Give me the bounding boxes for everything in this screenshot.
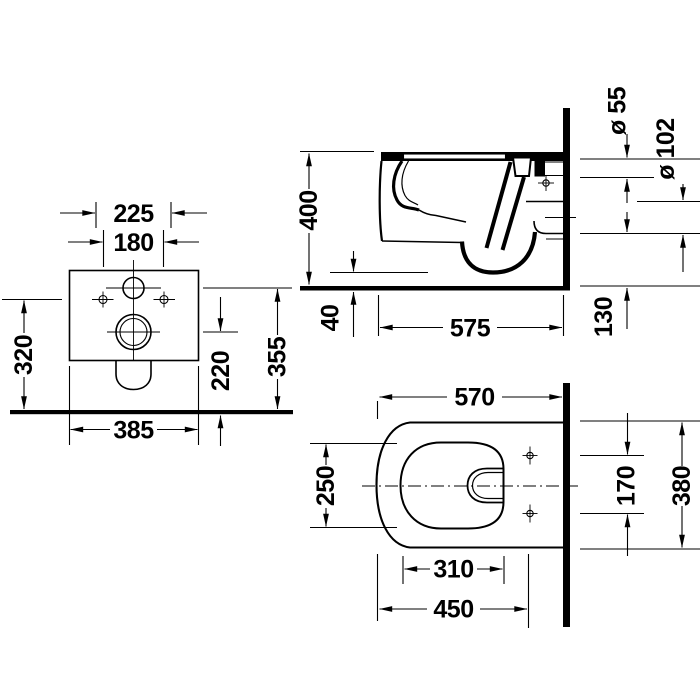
front-trapway-outline <box>116 361 151 390</box>
dim-label-250: 250 <box>312 466 340 506</box>
side-outlet-bottom <box>534 221 563 234</box>
dim-label-400: 400 <box>295 190 323 230</box>
front-floor-line <box>10 410 293 414</box>
dim-380: 380 <box>668 423 696 548</box>
dim-225: 225 <box>60 200 207 228</box>
side-trapway-curve <box>462 232 535 273</box>
dim-180: 180 <box>68 229 199 257</box>
dim-label-220: 220 <box>207 351 235 391</box>
dim-label-170: 170 <box>613 466 641 506</box>
dim-label-385: 385 <box>113 417 154 445</box>
toilet-dimension-drawing: 225 180 320 355 220 385 <box>0 0 700 700</box>
dim-575: 575 <box>380 315 562 343</box>
dim-dia-102: ø 102 <box>652 118 683 272</box>
dim-label-310: 310 <box>433 556 473 584</box>
dim-label-225: 225 <box>113 200 154 228</box>
dim-label-320: 320 <box>10 335 38 375</box>
dim-label-180: 180 <box>113 229 153 257</box>
dim-label-dia55: ø 55 <box>604 86 632 135</box>
side-spud-block <box>535 159 546 177</box>
dim-40: 40 <box>317 251 354 337</box>
side-bowl-floor-line <box>419 210 466 222</box>
dim-label-570: 570 <box>454 384 494 412</box>
top-bowl-outline <box>401 443 504 529</box>
dim-250: 250 <box>312 445 340 527</box>
side-toilet-profile <box>380 152 576 273</box>
side-wall-line <box>563 108 570 290</box>
dim-450: 450 <box>380 596 528 624</box>
top-view: 570 250 310 450 170 380 <box>310 383 700 628</box>
dim-label-40: 40 <box>317 305 345 332</box>
dim-label-dia102: ø 102 <box>652 118 680 179</box>
dim-label-355: 355 <box>264 336 292 377</box>
side-floor-line <box>300 286 570 291</box>
dim-570: 570 <box>380 384 563 412</box>
top-flush-rim-inner <box>473 473 504 499</box>
dim-label-130: 130 <box>590 297 618 337</box>
top-extension-lines <box>310 401 700 628</box>
dim-320: 320 <box>10 301 38 410</box>
top-seat-holes <box>523 447 538 523</box>
top-wall-line <box>563 383 570 627</box>
side-extension-lines <box>300 152 700 337</box>
side-bowl-outer-curve <box>394 161 419 210</box>
dim-385: 385 <box>71 417 198 445</box>
dim-130: 130 <box>590 212 627 337</box>
side-flush-channel-back <box>503 177 525 250</box>
dim-label-450: 450 <box>433 596 473 624</box>
side-front-edge <box>380 161 382 241</box>
dim-400: 400 <box>295 154 323 285</box>
dim-label-575: 575 <box>450 315 491 343</box>
side-bottom-edge <box>382 241 462 243</box>
front-view: 225 180 320 355 220 385 <box>2 200 293 446</box>
dim-355: 355 <box>264 289 292 409</box>
dim-dia-55: ø 55 <box>604 86 632 203</box>
dim-310: 310 <box>405 556 503 584</box>
front-body-outline <box>70 271 199 361</box>
dim-label-380: 380 <box>668 466 696 506</box>
side-rim-slot <box>404 154 506 159</box>
side-view: 400 ø 55 ø 102 130 40 575 <box>295 86 700 342</box>
side-inlet-spud <box>513 158 531 177</box>
dim-170: 170 <box>613 413 641 556</box>
side-bowl-inner-curve <box>402 161 418 205</box>
dim-220: 220 <box>207 297 235 446</box>
technical-drawing-page: 225 180 320 355 220 385 <box>0 0 700 700</box>
